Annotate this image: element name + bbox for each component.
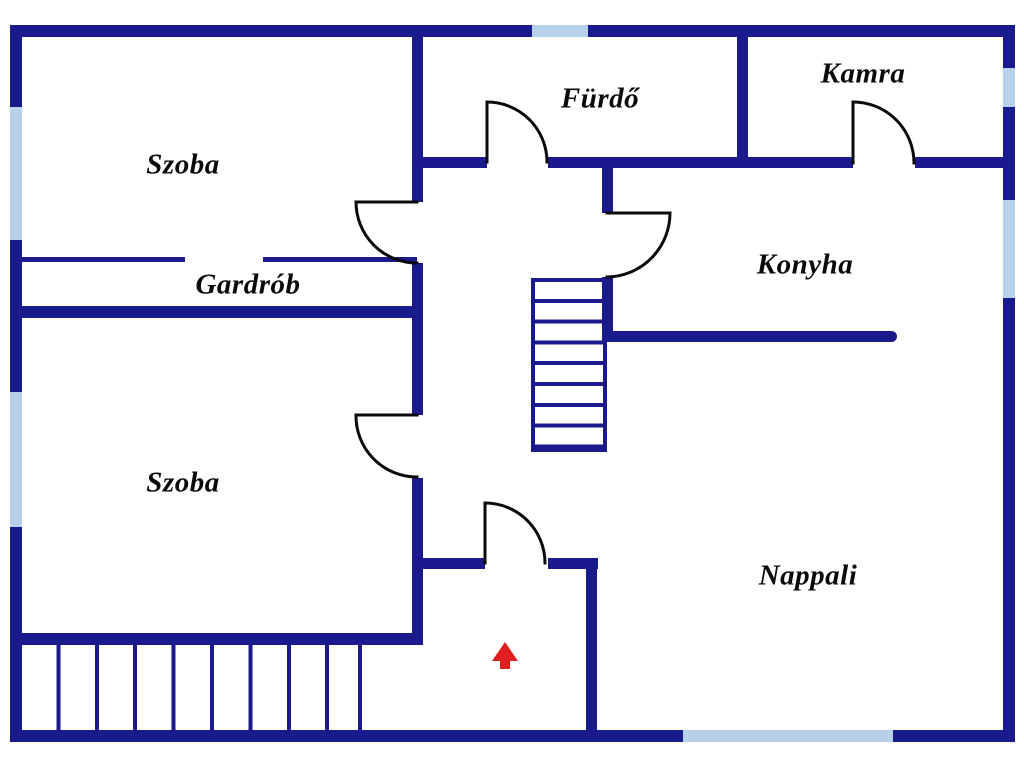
window-bottom-nappali — [683, 730, 893, 742]
wall-szoba-hall-upper — [412, 31, 423, 202]
door-entry-icon — [485, 503, 545, 563]
gardrob-front-line-left — [20, 257, 185, 262]
room-label-nappali: Nappali — [759, 560, 858, 593]
door-szoba-bottom-icon — [356, 415, 417, 477]
terrace-steps — [22, 645, 362, 730]
room-label-furdo: Fürdő — [561, 83, 639, 116]
door-konyha-icon — [607, 213, 670, 277]
outer-wall-right — [1003, 25, 1015, 742]
staircase — [531, 278, 607, 452]
outer-wall-top — [10, 25, 1015, 37]
room-label-szoba-bottom: Szoba — [146, 467, 219, 500]
szoba-bottom-wall — [10, 633, 423, 645]
window-right-konyha — [1003, 200, 1015, 298]
kamra-bottom-wall-right — [915, 157, 1015, 168]
floor-plan: Szoba Fürdő Kamra Gardrób Konyha Szoba N… — [0, 0, 1024, 768]
wall-furdo-kamra — [737, 31, 748, 168]
door-furdo-icon — [487, 102, 547, 162]
window-left-upper — [10, 107, 22, 240]
furdo-kamra-bottom-wall — [548, 157, 853, 168]
door-kamra-icon — [853, 102, 914, 163]
room-label-szoba-top: Szoba — [146, 149, 219, 182]
room-label-gardrob: Gardrób — [195, 269, 300, 302]
door-szoba-top-icon — [356, 202, 417, 263]
konyha-nappali-partial-wall — [602, 331, 897, 342]
window-right-kamra — [1003, 68, 1015, 107]
window-left-lower — [10, 392, 22, 527]
furdo-bottom-wall-left — [412, 157, 487, 168]
konyha-left-wall-upper — [602, 157, 613, 213]
vestibule-right-wall — [586, 558, 597, 742]
gardrob-bottom-wall — [20, 306, 423, 318]
wall-hall-middle — [412, 263, 423, 415]
room-label-kamra: Kamra — [821, 58, 906, 91]
room-label-konyha: Konyha — [757, 249, 853, 282]
entrance-arrow-icon — [492, 642, 518, 661]
entry-wall-left — [412, 558, 485, 569]
gardrob-front-line-right — [263, 257, 417, 262]
window-top — [532, 25, 588, 37]
entrance-arrow-stem — [500, 659, 510, 669]
